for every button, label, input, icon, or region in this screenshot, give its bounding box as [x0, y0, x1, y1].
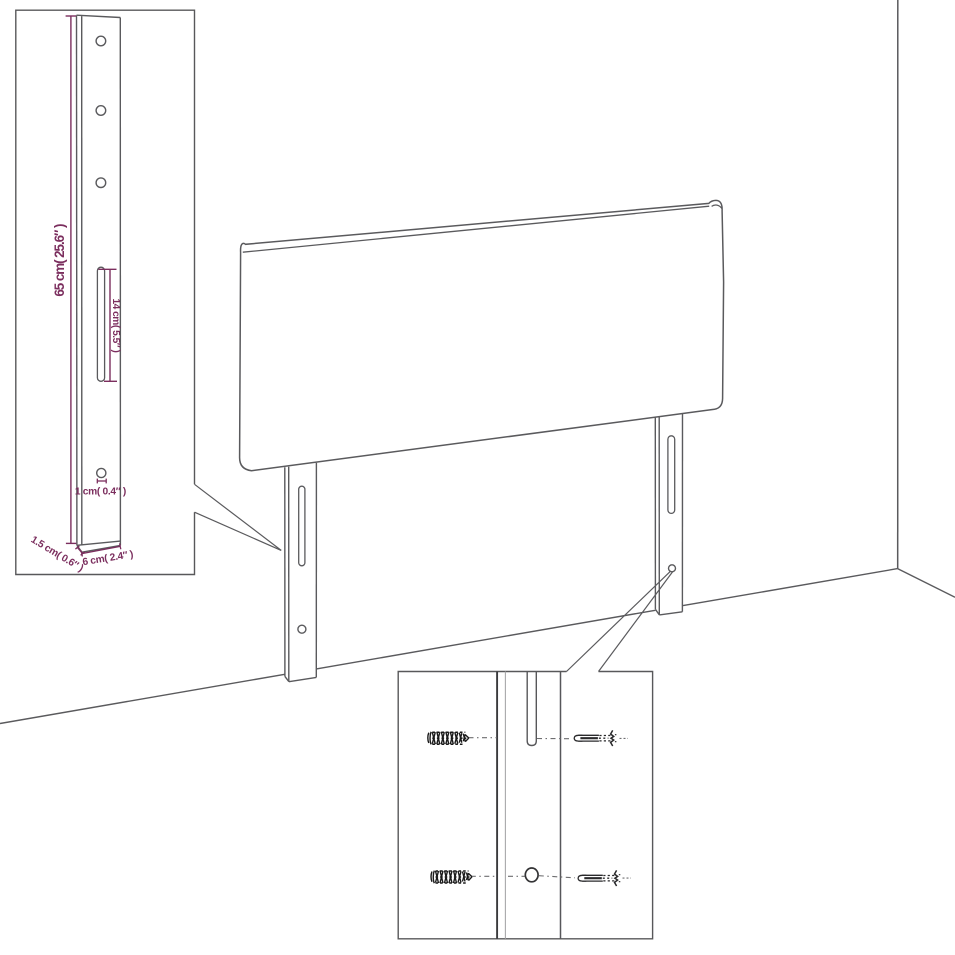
svg-text:1 cm( 0.4″ ): 1 cm( 0.4″ ): [75, 486, 126, 497]
svg-text:65 cm( 25.6″ ): 65 cm( 25.6″ ): [52, 224, 67, 297]
svg-text:14 cm( 5.5″ ): 14 cm( 5.5″ ): [110, 298, 121, 352]
